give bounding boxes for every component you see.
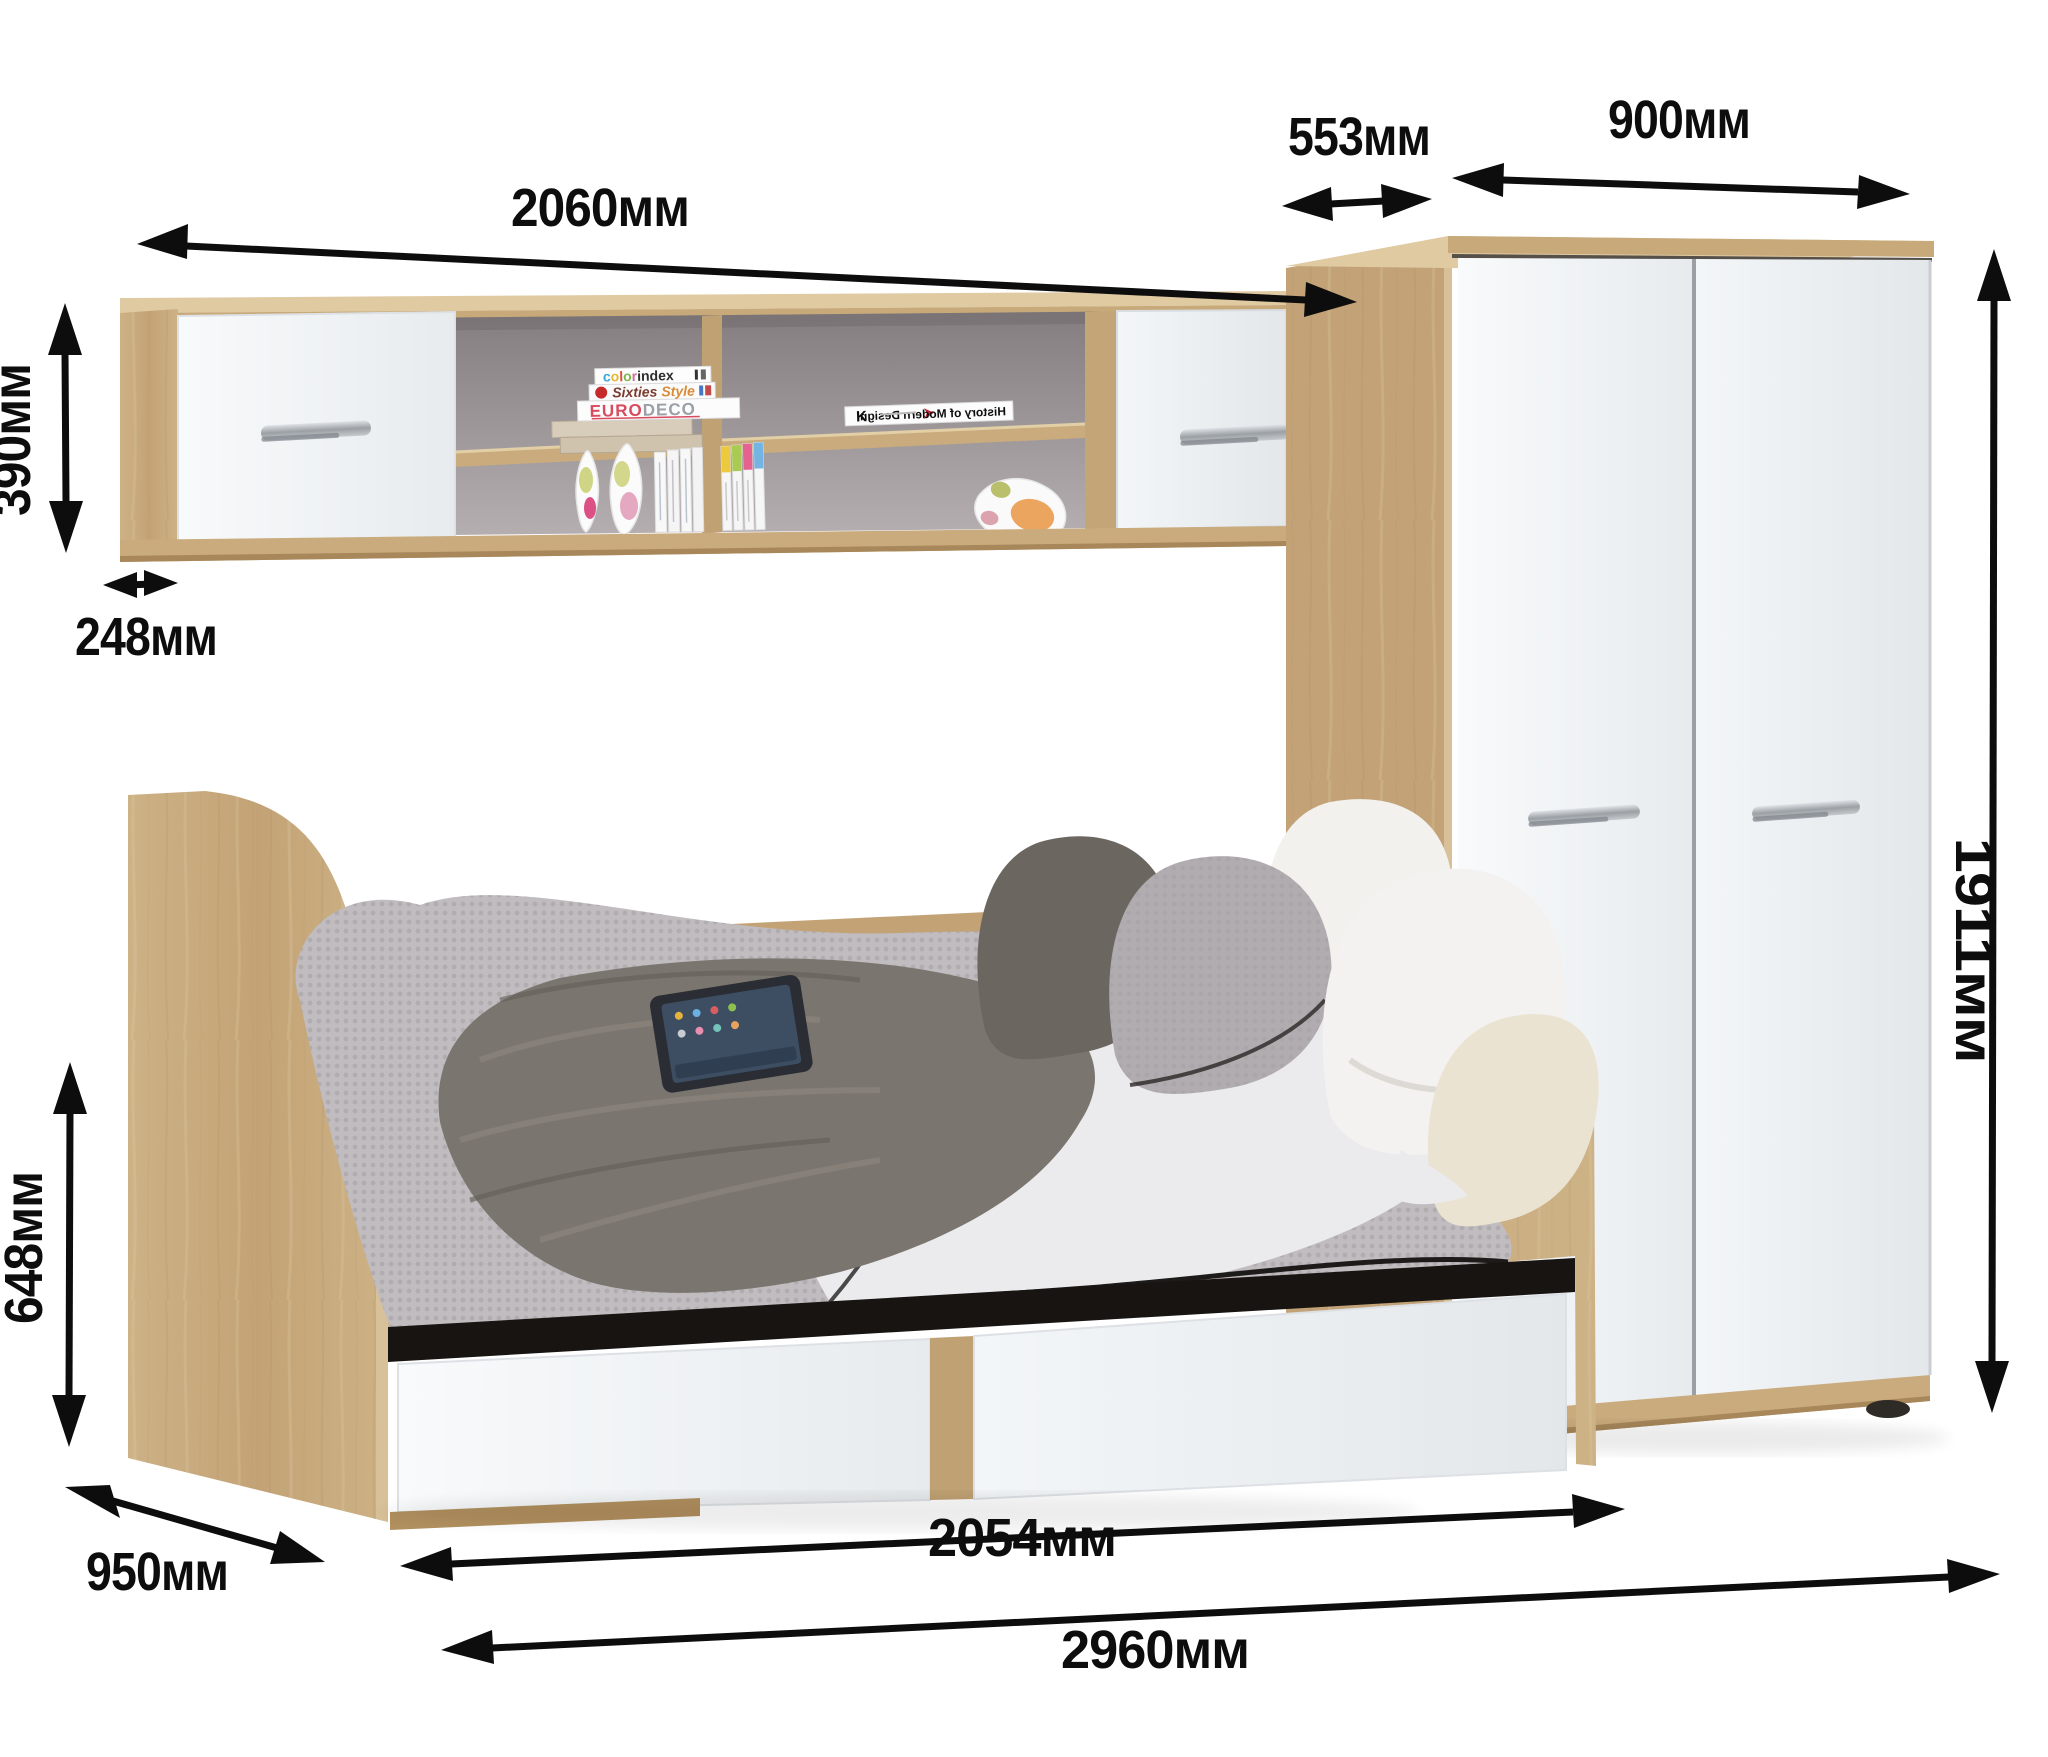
ci-o2: o: [623, 368, 632, 384]
colored-book-text2: [737, 481, 738, 521]
sixties-mark2: [705, 385, 711, 395]
wardrobe-foot-right: [1866, 1400, 1910, 1418]
label-bed-length: 2054мм: [928, 1508, 1116, 1568]
dimension-bed-depth: 950мм: [65, 1485, 325, 1602]
sixties-word2: Style: [661, 383, 695, 400]
label-wardrobe-height: 1911мм: [1944, 838, 2004, 1063]
book-sixties-style: SixtiesStyle: [589, 382, 715, 401]
dimension-wardrobe-height: 1911мм: [1944, 249, 2011, 1413]
dimension-wardrobe-depth: 553мм: [1282, 107, 1432, 221]
dimension-shelf-height: 390мм: [0, 303, 83, 553]
bed-drawer-left: [398, 1339, 930, 1512]
svg-text:colorindex: colorindex: [603, 367, 674, 384]
book-eurodeco: EURODECO: [577, 398, 739, 421]
ci-mark2: [701, 369, 706, 379]
wall-shelf: EURODECO SixtiesStyle colorindex: [120, 291, 1290, 562]
sixties-word1: Sixties: [612, 383, 658, 400]
label-shelf-height: 390мм: [0, 364, 42, 516]
scene: EURODECO SixtiesStyle colorindex: [0, 0, 2048, 1757]
bed-drawer-right: [974, 1294, 1566, 1499]
bed-drawer-divider: [930, 1336, 974, 1500]
shelf-right-door: [1117, 310, 1290, 530]
bed: [128, 791, 1599, 1530]
ci-mark1: [695, 370, 698, 380]
dimension-shelf-depth: 248мм: [75, 570, 217, 667]
svg-text:SixtiesStyle: SixtiesStyle: [612, 383, 695, 401]
dimension-bed-height: 648мм: [0, 1062, 87, 1447]
colored-book-text: [726, 482, 727, 520]
colored-book-blue: [754, 442, 765, 529]
shelf-center-divider: [702, 315, 722, 534]
arrowhead-left: [137, 224, 188, 259]
ci-rest: index: [637, 367, 674, 384]
sixties-mark1: [699, 385, 703, 395]
label-bed-height: 648мм: [0, 1172, 54, 1324]
label-total-width: 2960мм: [1061, 1620, 1249, 1680]
shelf-right-jamb: [1085, 311, 1117, 532]
label-shelf-width: 2060мм: [511, 178, 689, 238]
shelf-left-door: [178, 312, 455, 547]
ci-o1: o: [611, 368, 620, 384]
vase2-spot-rose: [620, 492, 638, 520]
label-wardrobe-depth: 553мм: [1288, 107, 1430, 167]
vase1-spot-pink: [584, 497, 596, 519]
white-book-text-line: [660, 462, 661, 520]
furniture-dimension-diagram: EURODECO SixtiesStyle colorindex: [0, 0, 2048, 1757]
label-wardrobe-width: 900мм: [1608, 90, 1750, 150]
vase1-spot-olive: [579, 467, 593, 493]
wardrobe-right-door: [1696, 259, 1930, 1396]
book-colorindex: colorindex: [595, 366, 711, 384]
dimension-wardrobe-width: 900мм: [1452, 90, 1910, 209]
dimension-total-width: 2960мм: [441, 1559, 2000, 1680]
label-bed-depth: 950мм: [86, 1542, 228, 1602]
label-shelf-depth: 248мм: [75, 607, 217, 667]
vase2-spot-olive: [614, 461, 630, 487]
shelf-left-cap-grain: [120, 309, 178, 562]
wardrobe-door-gap: [1692, 259, 1696, 1396]
